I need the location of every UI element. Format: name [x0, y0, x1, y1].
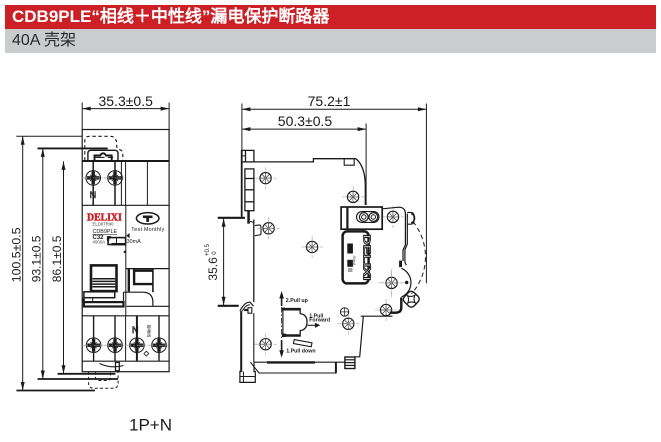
svg-text:DELIXI: DELIXI	[360, 235, 371, 281]
svg-text:ELD9TR90: ELD9TR90	[93, 222, 115, 227]
svg-text:35.3±0.5: 35.3±0.5	[98, 93, 153, 109]
svg-text:50.3±0.5: 50.3±0.5	[278, 113, 333, 129]
svg-text:93.1±0.5: 93.1±0.5	[30, 235, 44, 282]
svg-text:30mA: 30mA	[127, 239, 141, 245]
svg-text:Test Monthly: Test Monthly	[131, 227, 164, 233]
svg-text:接地线: 接地线	[145, 325, 152, 338]
svg-text:75.2±1: 75.2±1	[308, 93, 351, 109]
svg-text:86.1±0.5: 86.1±0.5	[50, 235, 64, 282]
svg-text:4500A: 4500A	[93, 239, 106, 244]
svg-text:1P+N: 1P+N	[129, 415, 172, 434]
svg-text:N: N	[132, 325, 139, 335]
svg-text:Forward: Forward	[309, 318, 330, 324]
svg-text:0: 0	[212, 251, 218, 255]
svg-text:1.Pull down: 1.Pull down	[286, 348, 315, 354]
svg-text:100.5±0.5: 100.5±0.5	[9, 227, 23, 282]
svg-text:2.Pull up: 2.Pull up	[286, 298, 309, 304]
svg-text:+0.5: +0.5	[205, 243, 211, 256]
svg-text:35.6: 35.6	[206, 257, 220, 281]
svg-text:N: N	[90, 190, 97, 201]
